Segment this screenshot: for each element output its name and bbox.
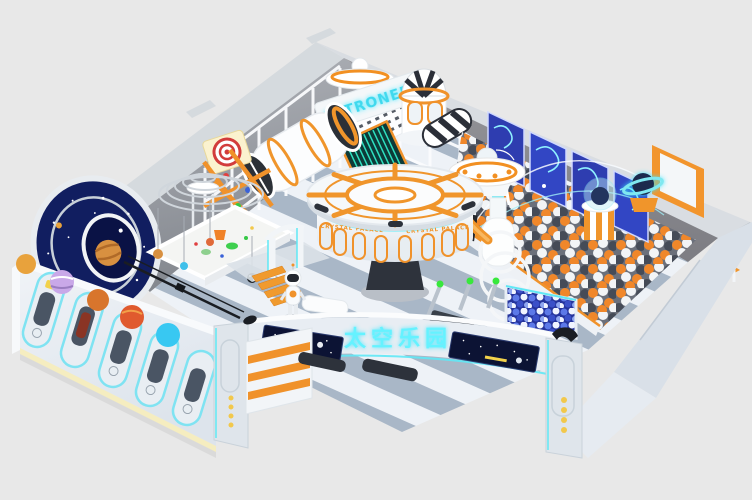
observation-dome-table — [582, 178, 618, 240]
playground-render: ASTRONEER — [0, 0, 752, 500]
entrance-pillar-right — [546, 327, 582, 458]
orange-pot — [630, 198, 658, 212]
sand-bucket — [214, 230, 226, 240]
entrance-sign: 太空乐园 — [344, 326, 452, 352]
robot-visor — [287, 274, 299, 282]
scene-svg: ASTRONEER — [0, 0, 752, 500]
